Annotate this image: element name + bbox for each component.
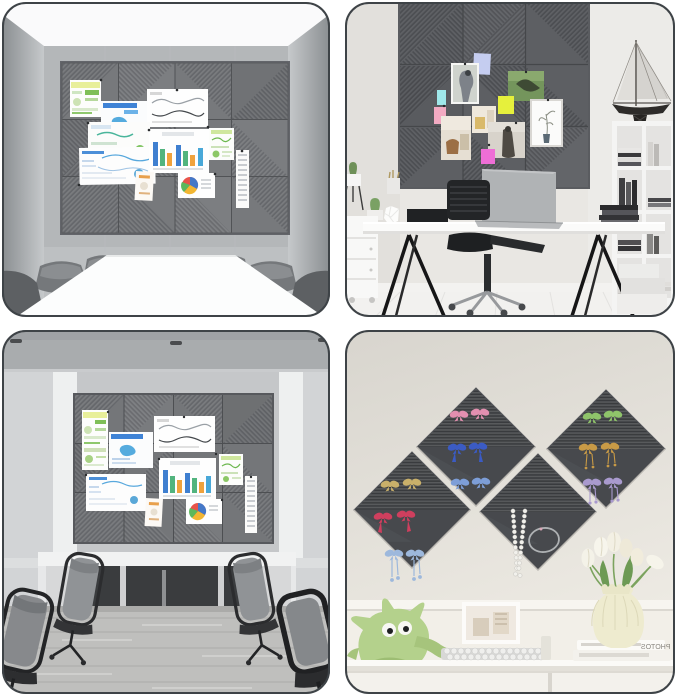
svg-text:PHOTOS: PHOTOS: [641, 644, 671, 651]
